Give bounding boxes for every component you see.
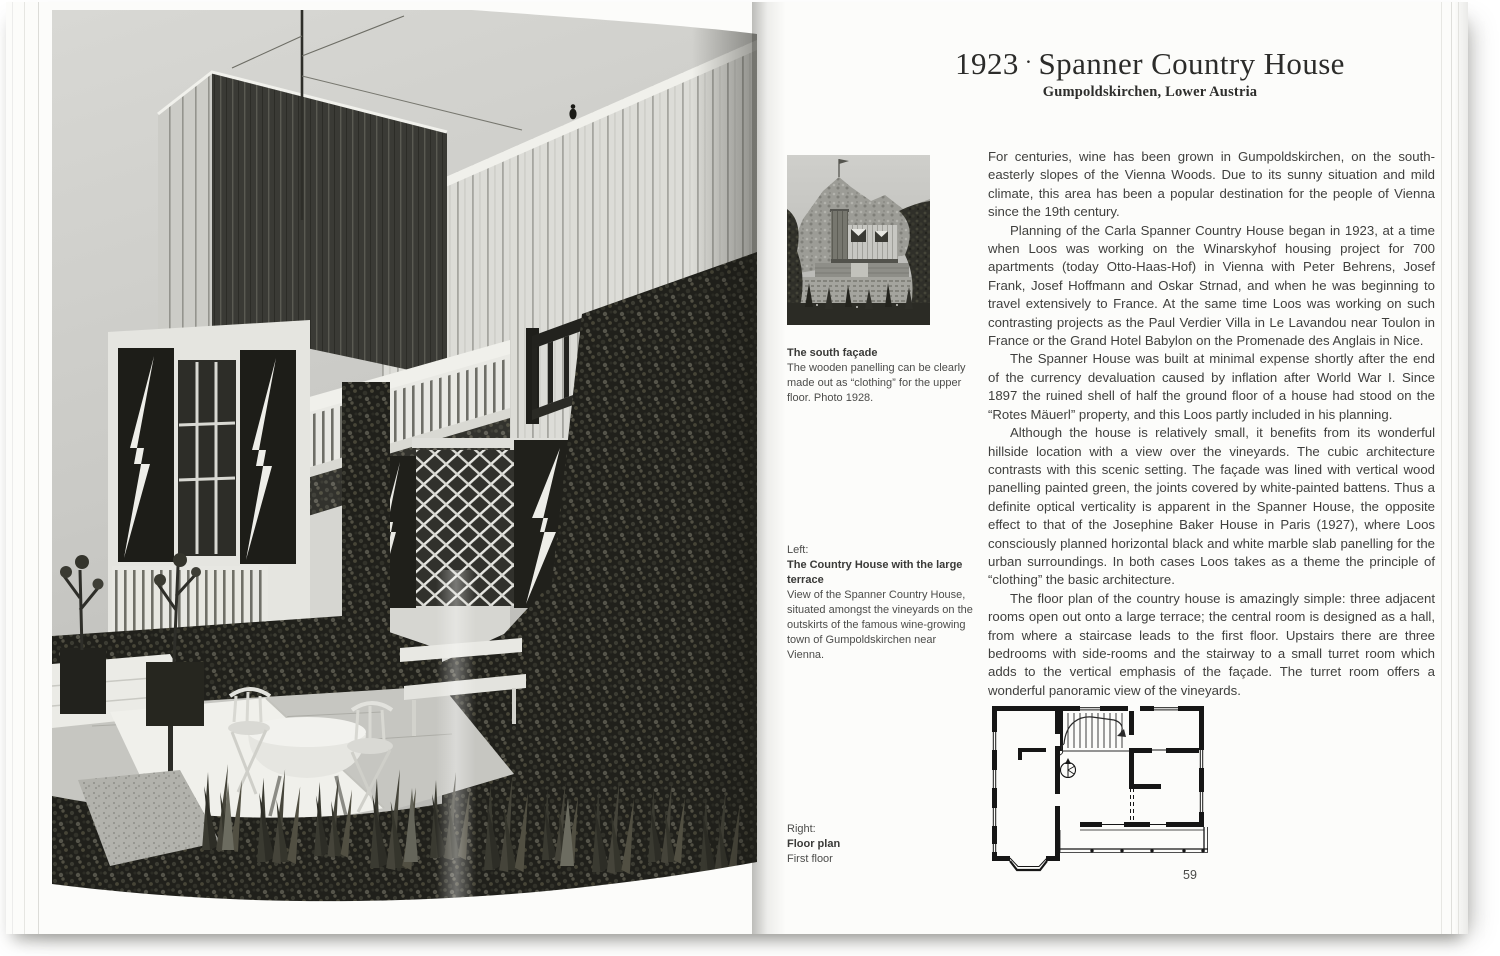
floor-plan-drawing (988, 692, 1226, 876)
caption-heading: The Country House with the large terrace (787, 558, 975, 588)
left-photo-illustration (52, 10, 757, 902)
caption-body: View of the Spanner Country House, situa… (787, 588, 975, 663)
terrace-plan (1060, 827, 1208, 853)
paragraph-4: Although the house is relatively small, … (988, 424, 1435, 590)
floor-plan-illustration (988, 692, 1226, 876)
paragraph-5: The floor plan of the country house is a… (988, 590, 1435, 700)
body-text: For centuries, wine has been grown in Gu… (988, 148, 1435, 700)
page-subtitle: Gumpoldskirchen, Lower Austria (900, 84, 1400, 101)
caption-heading: Floor plan (787, 837, 975, 852)
caption-body: First floor (787, 852, 975, 867)
caption-kicker: Right: (787, 822, 975, 837)
page-edge-line (24, 2, 25, 934)
paragraph-1: For centuries, wine has been grown in Gu… (988, 148, 1435, 222)
caption-floor-plan: Right: Floor plan First floor (787, 822, 975, 867)
staircase (1060, 711, 1129, 755)
left-page-photo (52, 10, 757, 902)
caption-south-facade: The south façade The wooden panelling ca… (787, 346, 975, 406)
page-edge-line (12, 2, 13, 934)
interior-walls (1018, 706, 1199, 861)
paragraph-3: The Spanner House was built at minimal e… (988, 350, 1435, 424)
book-spread: 1923·Spanner Country House Gumpoldskirch… (6, 2, 1468, 934)
chapter-header: 1923·Spanner Country House Gumpoldskirch… (900, 48, 1400, 101)
caption-kicker: Left: (787, 543, 975, 558)
small-photo-terrace-view (787, 155, 930, 325)
title-year: 1923 (955, 46, 1019, 81)
caption-body: The wooden panelling can be clearly made… (787, 361, 975, 406)
partition-dashed (1131, 788, 1134, 822)
title-name: Spanner Country House (1039, 46, 1345, 81)
spiral-stair (1061, 758, 1076, 778)
paragraph-2: Planning of the Carla Spanner Country Ho… (988, 222, 1435, 351)
right-page: 1923·Spanner Country House Gumpoldskirch… (770, 2, 1468, 934)
bay-window-with-zigzag-shutters (108, 320, 310, 660)
title-separator-dot: · (1019, 54, 1039, 71)
book-photo-stage: 1923·Spanner Country House Gumpoldskirch… (0, 0, 1500, 956)
caption-heading: The south façade (787, 346, 975, 361)
caption-terrace-view: Left: The Country House with the large t… (787, 543, 975, 663)
small-photo-illustration (787, 155, 930, 325)
page-title: 1923·Spanner Country House (900, 48, 1400, 81)
page-edge-line (38, 2, 39, 934)
terrace-wall (815, 263, 909, 279)
light-flare (436, 570, 476, 902)
page-edge-shade (1454, 2, 1468, 934)
bay-window-plan (1010, 858, 1047, 870)
spine-vignette (692, 10, 757, 902)
page-number: 59 (1160, 868, 1220, 882)
